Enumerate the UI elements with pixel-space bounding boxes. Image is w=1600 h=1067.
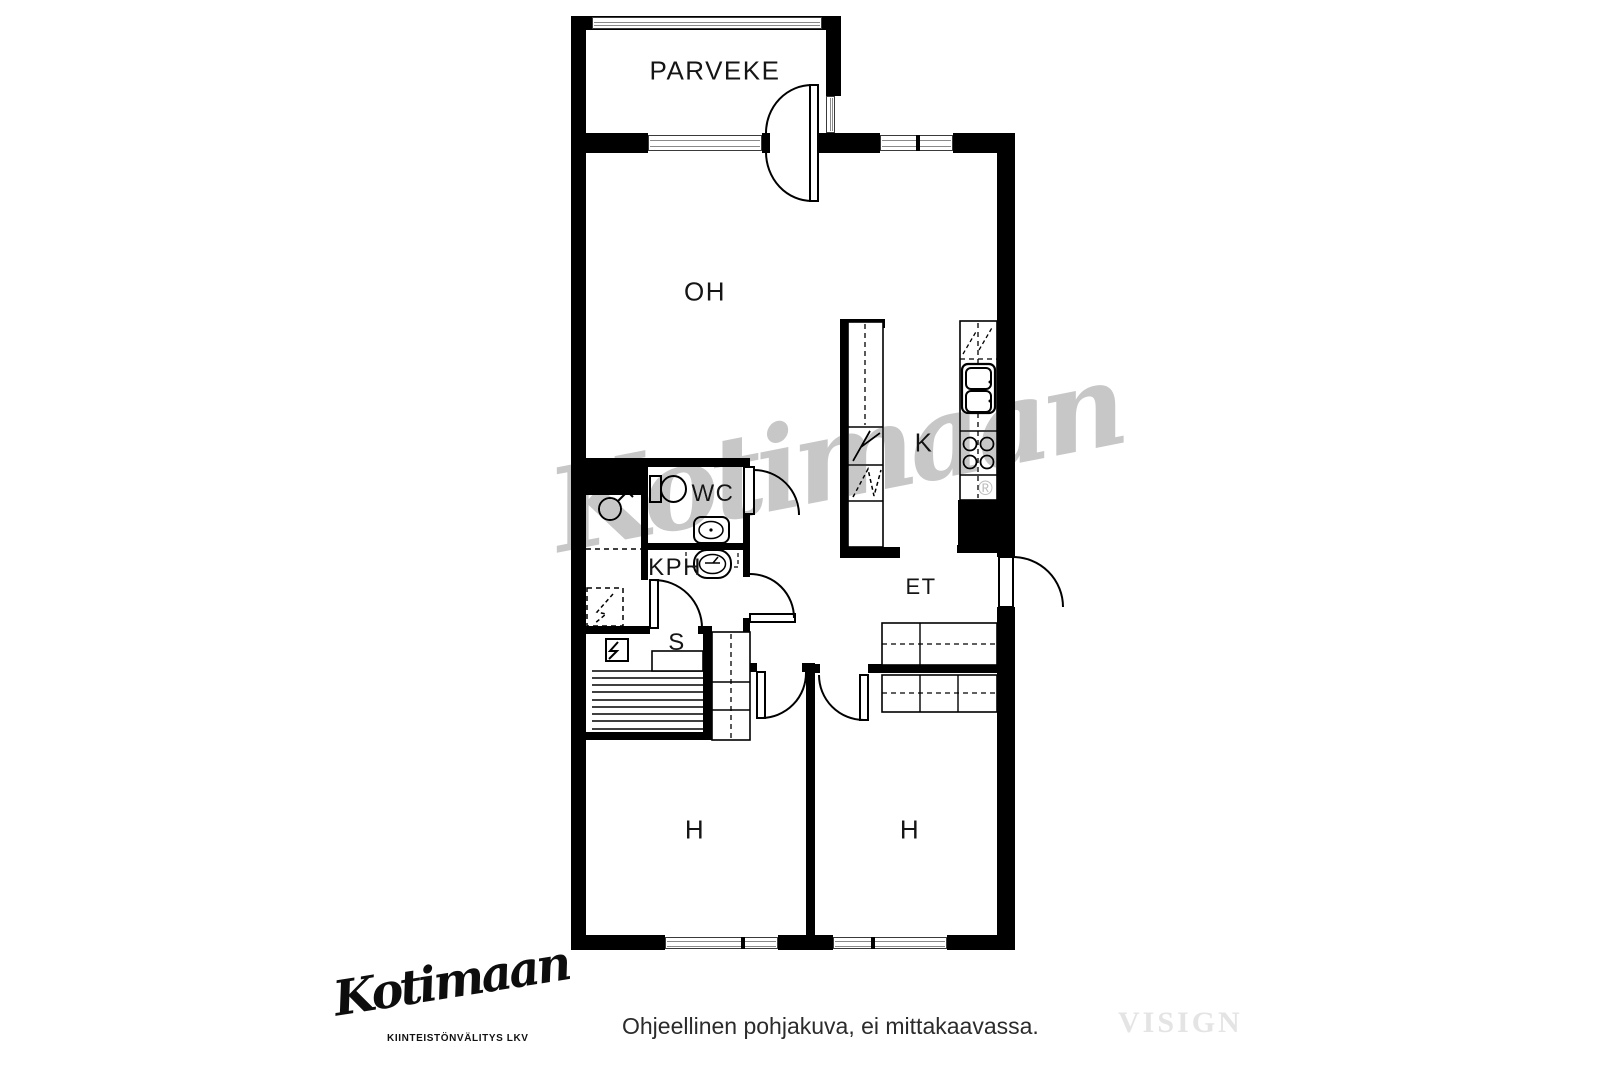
sauna-heater: [606, 639, 628, 661]
kotimaan-logo-subtitle: KIINTEISTÖNVÄLITYS LKV: [387, 1033, 529, 1044]
sauna-door: [650, 580, 702, 628]
sauna-benches: [592, 651, 703, 729]
hall-closet: [712, 632, 750, 740]
kitchen-sink: [962, 364, 995, 413]
plan-watermark-registered-icon: ®: [978, 478, 993, 501]
h1-door: [757, 672, 806, 718]
room-label-parveke: PARVEKE: [650, 56, 781, 87]
room-label-et: ET: [905, 574, 936, 600]
kph-door: [750, 574, 795, 622]
balcony-door: [766, 85, 818, 201]
room-label-kph: KPH: [648, 554, 702, 582]
room-label-k: K: [915, 428, 934, 459]
plan-graphics: [0, 0, 1600, 1067]
floorplan-page: PARVEKE OH K WC KPH ET S H H Kotimaan ® …: [0, 0, 1600, 1067]
wc-door: [744, 467, 799, 515]
kitchen-island-cabinet: [848, 322, 883, 547]
et-closet: [882, 623, 997, 665]
visign-watermark: VISIGN: [1118, 1006, 1243, 1040]
washing-machine: [587, 588, 623, 626]
room-label-h1: H: [685, 815, 705, 846]
disclaimer-text: Ohjeellinen pohjakuva, ei mittakaavassa.: [622, 1013, 1039, 1040]
wc-sink: [694, 517, 729, 543]
room-label-oh: OH: [684, 277, 726, 308]
room-label-wc: WC: [692, 480, 735, 508]
entry-door: [999, 557, 1063, 607]
toilet: [650, 476, 686, 502]
h2-closet: [882, 675, 997, 712]
h2-door: [819, 675, 868, 720]
room-label-s: S: [668, 629, 686, 657]
room-label-h2: H: [900, 815, 920, 846]
shower: [599, 486, 633, 520]
